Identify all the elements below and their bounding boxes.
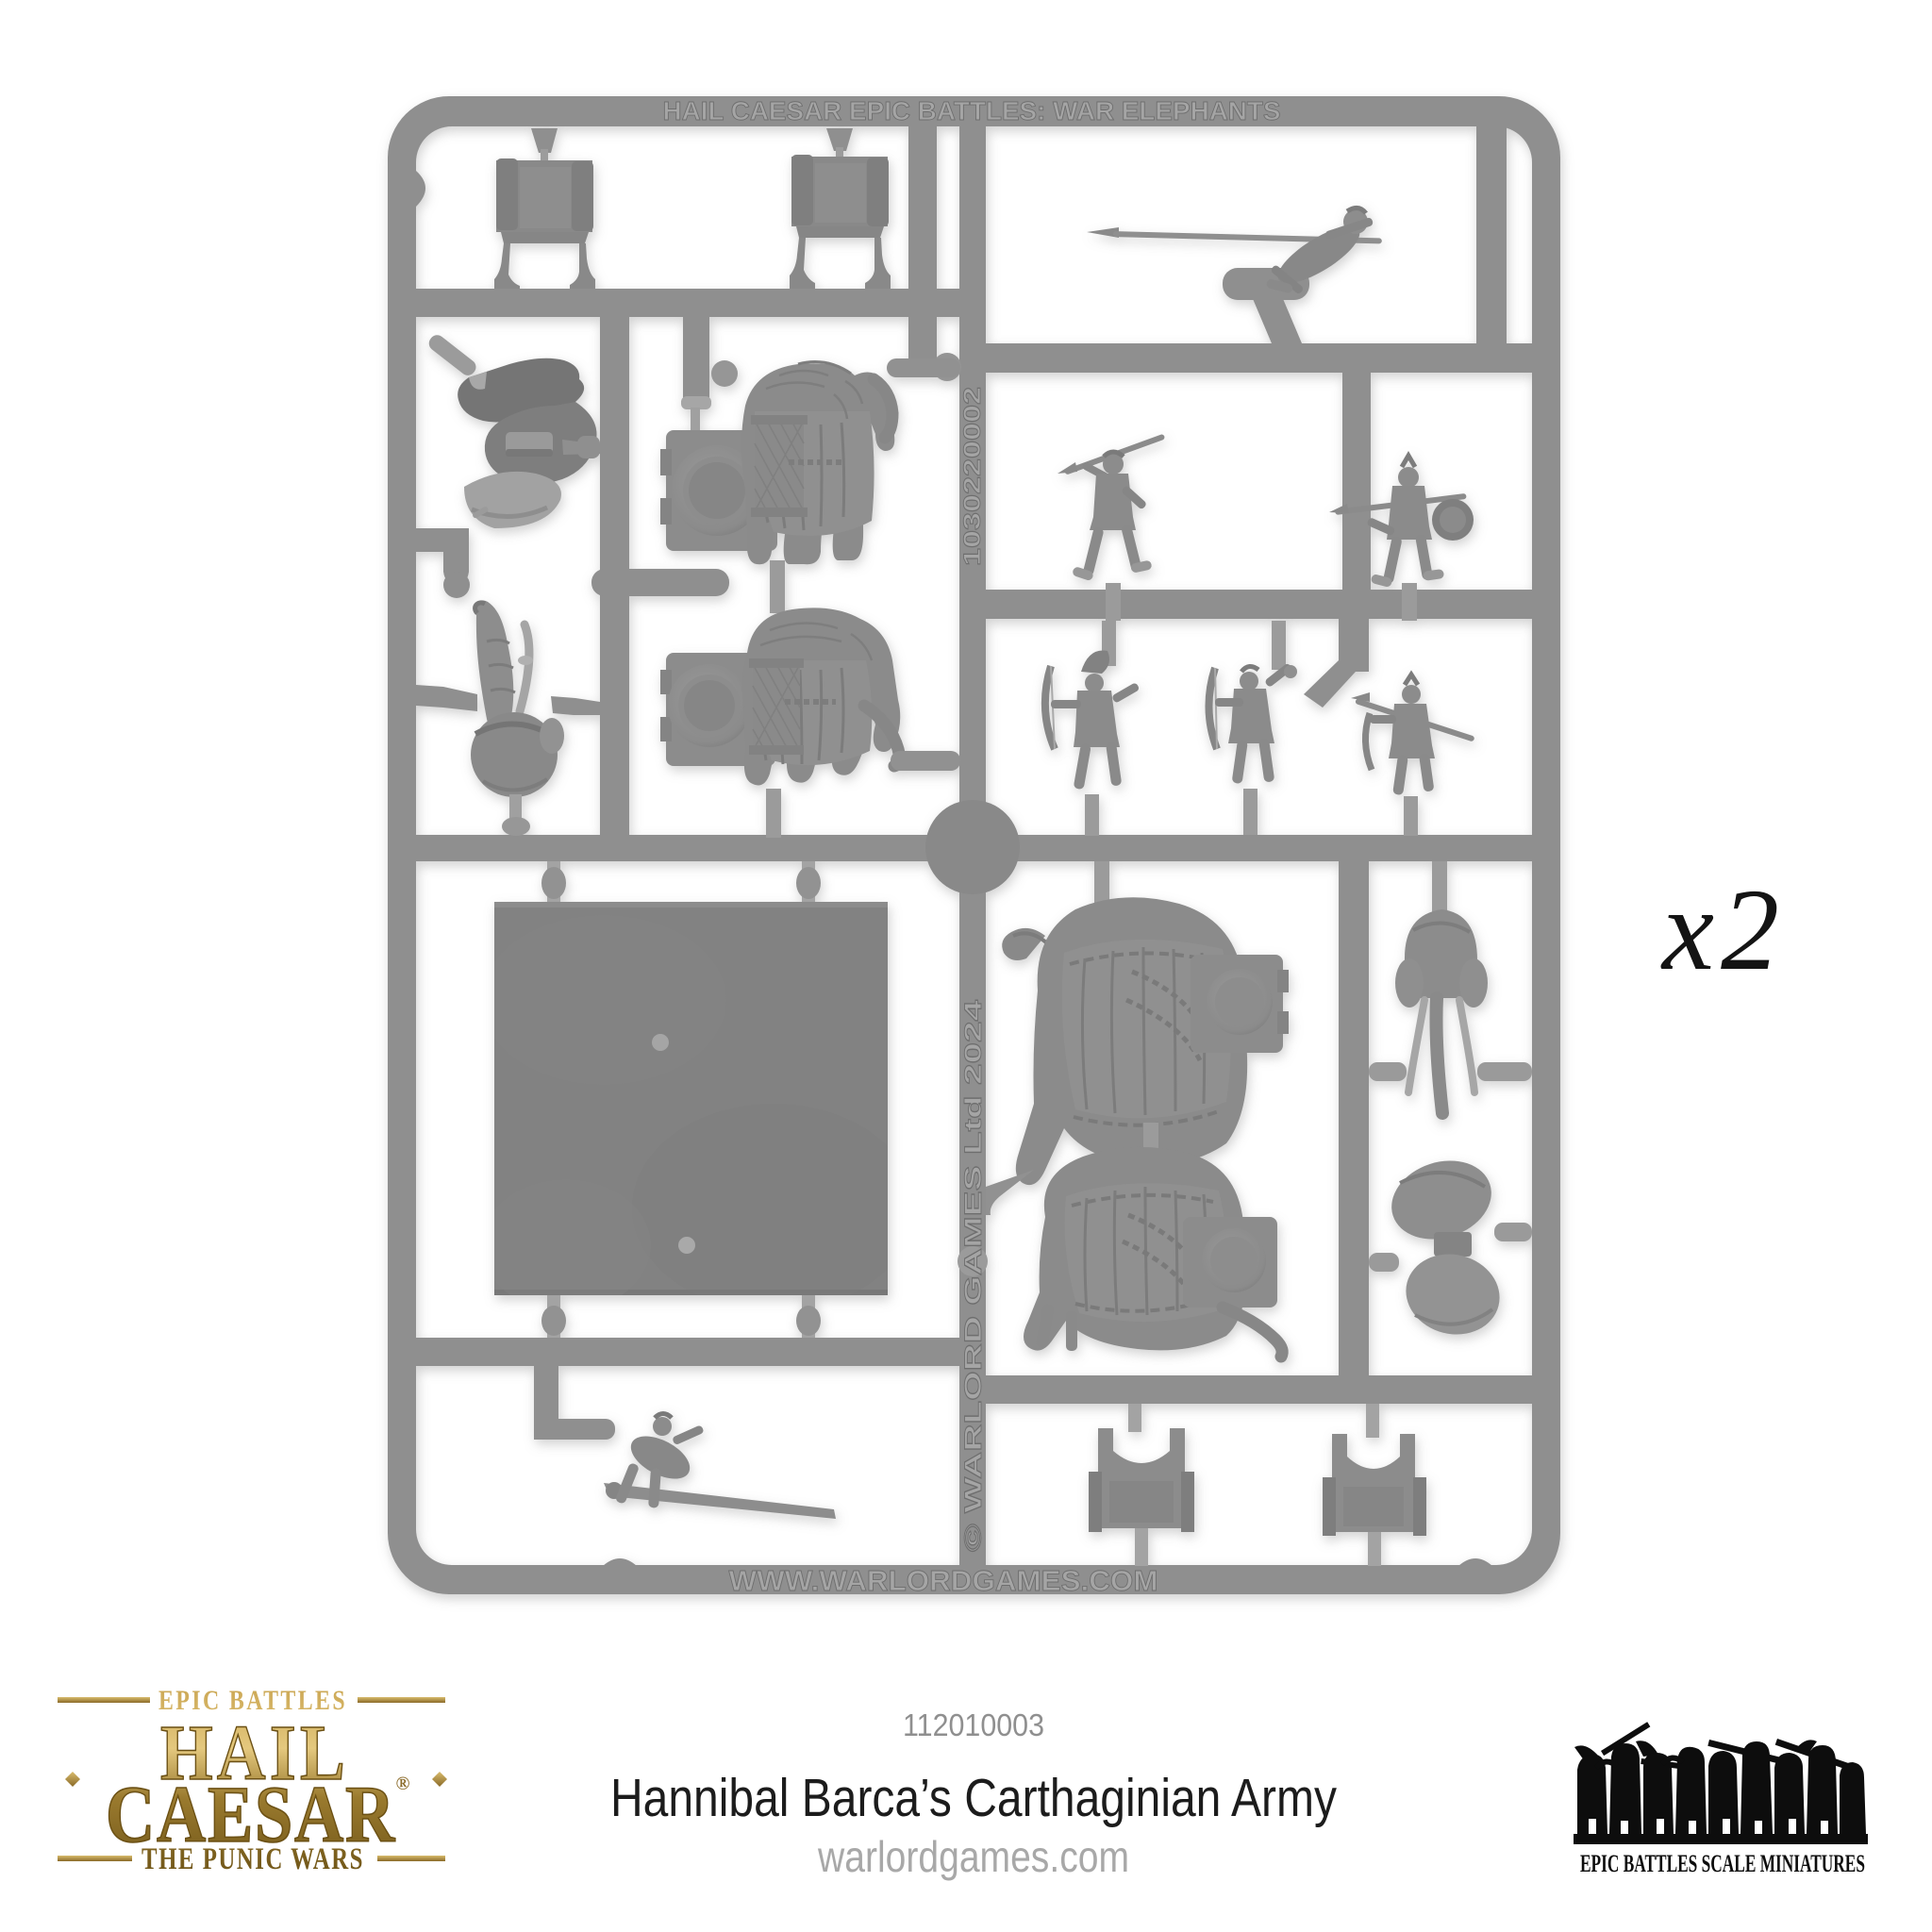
svg-text:WWW.WARLORDGAMES.COM: WWW.WARLORDGAMES.COM	[729, 1564, 1158, 1597]
svg-text:112010003: 112010003	[903, 1707, 1044, 1742]
svg-text:x2: x2	[1660, 865, 1786, 994]
svg-text:THE PUNIC WARS: THE PUNIC WARS	[142, 1842, 364, 1876]
svg-text:Hannibal Barca’s Carthaginian: Hannibal Barca’s Carthaginian Army	[610, 1768, 1337, 1828]
svg-text:1030220002: 1030220002	[959, 387, 986, 566]
svg-text:© WARLORD GAMES Ltd 2024: © WARLORD GAMES Ltd 2024	[960, 1000, 987, 1552]
svg-text:EPIC BATTLES SCALE MINIATURES: EPIC BATTLES SCALE MINIATURES	[1580, 1850, 1865, 1877]
svg-text:®: ®	[396, 1774, 410, 1794]
svg-text:HAIL CAESAR EPIC BATTLES: WAR: HAIL CAESAR EPIC BATTLES: WAR ELEPHANTS	[663, 96, 1281, 125]
svg-text:warlordgames.com: warlordgames.com	[817, 1832, 1129, 1881]
